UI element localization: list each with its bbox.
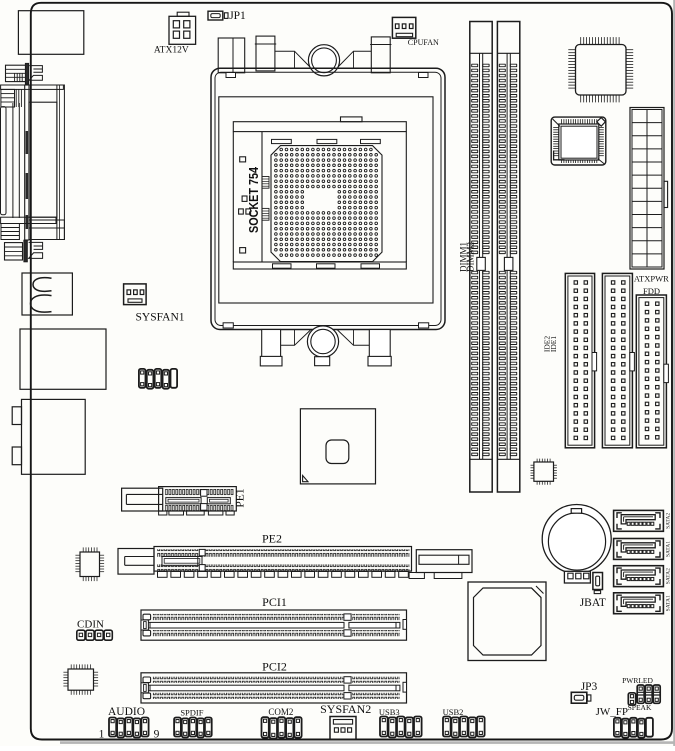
svg-text:SPEAK: SPEAK bbox=[628, 703, 652, 712]
svg-text:SYSFAN1: SYSFAN1 bbox=[136, 312, 185, 324]
svg-text:JW_FP: JW_FP bbox=[596, 706, 628, 718]
svg-text:USB2: USB2 bbox=[443, 707, 464, 717]
svg-text:DIMM2: DIMM2 bbox=[466, 242, 476, 272]
svg-text:CPUFAN: CPUFAN bbox=[408, 38, 439, 47]
svg-text:AUDIO: AUDIO bbox=[108, 706, 145, 718]
svg-text:SYSFAN2: SYSFAN2 bbox=[320, 702, 371, 716]
svg-text:ATX12V: ATX12V bbox=[154, 45, 189, 55]
svg-text:PCI2: PCI2 bbox=[262, 660, 287, 674]
svg-text:9: 9 bbox=[154, 729, 160, 741]
svg-text:IDE1: IDE1 bbox=[549, 336, 558, 352]
svg-text:CDIN: CDIN bbox=[77, 619, 104, 631]
svg-text:PCI1: PCI1 bbox=[262, 595, 287, 609]
svg-text:SATA2: SATA2 bbox=[666, 568, 672, 584]
svg-text:PE1: PE1 bbox=[235, 488, 247, 507]
svg-text:1: 1 bbox=[99, 729, 105, 741]
svg-text:USB3: USB3 bbox=[379, 707, 400, 717]
svg-text:JP3: JP3 bbox=[581, 681, 598, 693]
svg-text:JBAT: JBAT bbox=[580, 597, 606, 609]
svg-text:JP1: JP1 bbox=[229, 10, 246, 22]
svg-text:PE2: PE2 bbox=[262, 532, 282, 546]
svg-text:SATA1: SATA1 bbox=[666, 595, 672, 611]
svg-text:COM2: COM2 bbox=[268, 707, 293, 717]
svg-text:SATA1: SATA1 bbox=[666, 541, 672, 557]
svg-text:ATXPWR: ATXPWR bbox=[634, 274, 669, 284]
svg-text:SOCKET 754: SOCKET 754 bbox=[246, 166, 261, 233]
svg-text:SPDIF: SPDIF bbox=[180, 707, 203, 717]
svg-text:PWRLED: PWRLED bbox=[622, 676, 653, 685]
svg-text:SATA2: SATA2 bbox=[666, 513, 672, 529]
svg-text:FDD: FDD bbox=[643, 286, 660, 296]
